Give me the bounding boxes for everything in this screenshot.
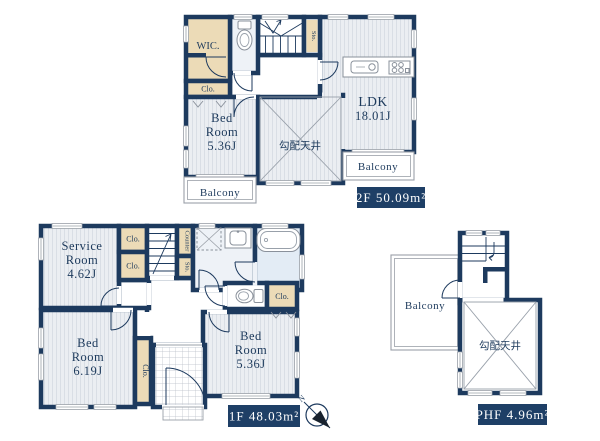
closet-1f-right-label: Clo. (275, 292, 289, 301)
area-label-phf-text: PHF 4.96m² (476, 407, 550, 422)
ldk-name: LDK (358, 94, 387, 109)
area-label-2f: 2F 50.09m² (356, 187, 426, 208)
ldk-size: 18.01J (355, 109, 391, 123)
closet-1f-vertical-label: Clo. (141, 364, 150, 378)
floor-phf-plan: Balcony (391, 231, 549, 426)
vaulted-ceiling-label-phf: 勾配天井 (479, 339, 521, 352)
porch-tile (163, 407, 203, 420)
storage-2f-label: Sto. (310, 31, 317, 42)
service-room-name-1: Service (62, 239, 103, 253)
area-label-phf: PHF 4.96m² (476, 404, 550, 425)
compass-north-label: N (297, 393, 307, 404)
corridor-patch (138, 312, 151, 336)
bedroom-1f-left-name-1: Bed (77, 336, 99, 350)
floor-2f-plan: Balcony Balcony WIC. Clo. Sto. Bed Room … (184, 15, 427, 209)
stove-icon (389, 61, 410, 74)
balcony-2f-right-label: Balcony (358, 161, 398, 173)
toilet-icon-1f (236, 289, 263, 303)
bedroom-1f-right-name-1: Bed (240, 329, 262, 343)
bedroom-1f-left-size: 6.19J (73, 364, 102, 378)
bedroom-1f-right-size: 5.36J (236, 357, 265, 371)
sink-icon (351, 61, 378, 73)
closet-2f-label: Clo. (201, 85, 215, 94)
vaulted-ceiling-label-2f: 勾配天井 (279, 139, 321, 152)
phf-inner-wall-v (483, 267, 488, 283)
service-room-name-2: Room (66, 253, 99, 267)
closet-1f-a-label: Clo. (126, 235, 140, 244)
closet-1f-b-label: Clo. (126, 262, 140, 271)
area-label-2f-text: 2F 50.09m² (356, 190, 426, 205)
balcony-phf-label: Balcony (405, 300, 445, 312)
floor-plan-drawing: Balcony Balcony WIC. Clo. Sto. Bed Room … (0, 0, 600, 441)
service-room-size: 4.62J (67, 267, 96, 281)
bedroom-2f-name-2: Room (206, 125, 239, 139)
storage-1f-label: Sto. (184, 262, 191, 273)
bedroom-2f-name-1: Bed (211, 111, 233, 125)
floor-1f-plan: N Service Room 4.62J Clo. Clo. Counter S… (39, 224, 331, 429)
counter-label: Counter (184, 231, 191, 253)
bedroom-2f-size: 5.36J (207, 139, 236, 153)
floor-plan-page: Balcony Balcony WIC. Clo. Sto. Bed Room … (0, 0, 600, 441)
vanity-sink-icon (225, 228, 251, 248)
balcony-2f-left-label: Balcony (200, 187, 240, 199)
genkan-tile-floor (156, 348, 203, 405)
compass-icon: N (297, 393, 330, 428)
bathtub-icon (257, 229, 300, 252)
balcony-2f-right: Balcony (343, 152, 414, 180)
wic-label: WIC. (196, 41, 219, 52)
toilet-icon-2f (237, 21, 252, 50)
area-label-1f-text: 1F 48.03m² (229, 409, 299, 424)
bedroom-1f-left-name-2: Room (72, 350, 105, 364)
wic-partition-wall (186, 53, 206, 58)
hall-1f-west (119, 280, 149, 308)
balcony-2f-left: Balcony (184, 177, 256, 203)
balcony-phf: Balcony (391, 255, 461, 350)
bedroom-1f-right-name-2: Room (235, 343, 268, 357)
kitchen-counter (343, 57, 414, 77)
area-label-1f: 1F 48.03m² (228, 405, 300, 427)
